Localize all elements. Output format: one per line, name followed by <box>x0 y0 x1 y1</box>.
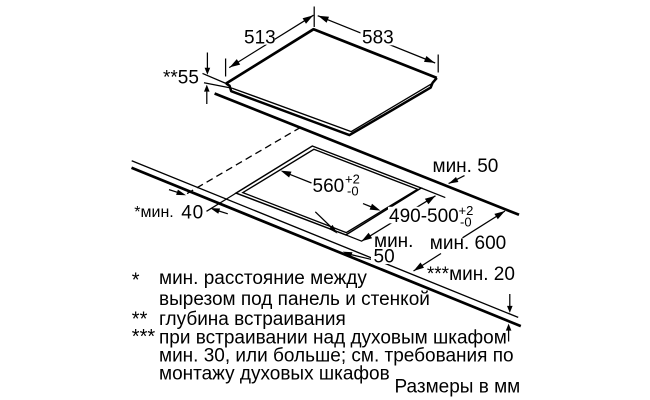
svg-text:50: 50 <box>374 247 395 268</box>
svg-text:*: * <box>132 270 140 292</box>
svg-text:мин. 600: мин. 600 <box>430 233 506 254</box>
svg-text:560: 560 <box>313 176 345 197</box>
svg-text:-0: -0 <box>347 184 359 199</box>
svg-text:513: 513 <box>244 28 276 49</box>
svg-text:*мин.: *мин. <box>134 204 173 221</box>
svg-text:***: *** <box>132 326 156 348</box>
svg-text:монтажу духовых шкафов: монтажу духовых шкафов <box>159 364 390 385</box>
svg-text:40: 40 <box>181 203 204 224</box>
svg-text:**55: **55 <box>163 68 199 89</box>
svg-text:***мин. 20: ***мин. 20 <box>427 264 515 285</box>
svg-text:мин. расстояние между: мин. расстояние между <box>159 268 367 289</box>
svg-text:вырезом под панель и стенкой: вырезом под панель и стенкой <box>159 289 430 310</box>
svg-text:583: 583 <box>362 28 394 49</box>
svg-text:490-500: 490-500 <box>389 206 459 227</box>
svg-text:-0: -0 <box>460 215 472 230</box>
svg-text:мин. 50: мин. 50 <box>433 156 499 177</box>
svg-text:Размеры в мм: Размеры в мм <box>395 377 521 398</box>
